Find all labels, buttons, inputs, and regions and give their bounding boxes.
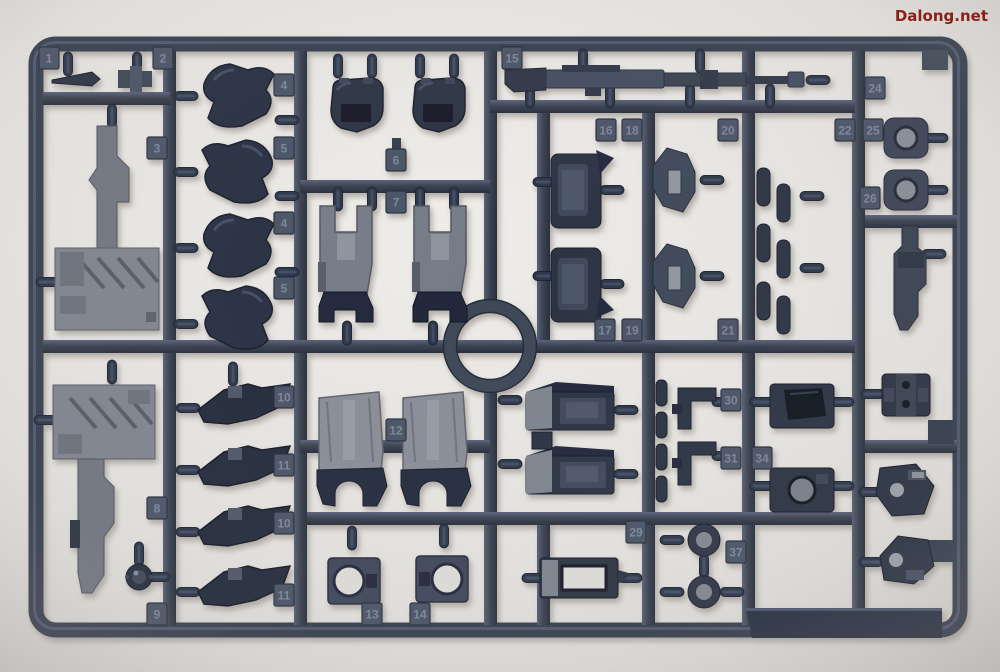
- watermark: Dalong.net: [895, 7, 988, 25]
- photo-vignette: [0, 0, 1000, 672]
- runner-sprue-scene: 1234545678910111011121314151618201719212…: [0, 0, 1000, 672]
- runner-photo: 1234545678910111011121314151618201719212…: [0, 0, 1000, 672]
